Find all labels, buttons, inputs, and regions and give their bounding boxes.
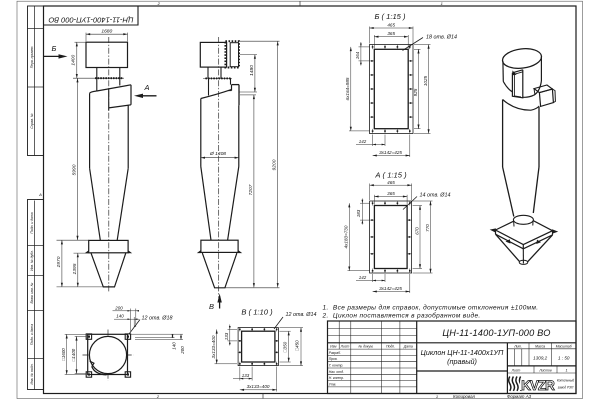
svg-text:1680: 1680: [101, 28, 112, 34]
svg-text:ЦН-11-1400-1УП-000 ВО: ЦН-11-1400-1УП-000 ВО: [48, 16, 133, 25]
svg-text:Лист: Лист: [511, 368, 521, 372]
svg-text:3х133=400: 3х133=400: [211, 335, 216, 358]
svg-text:Копировал: Копировал: [453, 394, 476, 399]
svg-text:Подп. и дата: Подп. и дата: [30, 212, 34, 233]
svg-text:□1600: □1600: [61, 348, 66, 361]
svg-text:142: 142: [359, 275, 367, 280]
svg-text:5990: 5990: [72, 164, 78, 175]
svg-text:Перв. примен.: Перв. примен.: [30, 46, 34, 69]
svg-text:А: А: [143, 83, 149, 92]
svg-text:Подп. и дата: Подп. и дата: [30, 324, 34, 345]
svg-text:140: 140: [172, 342, 177, 350]
svg-text:Лист: Лист: [340, 345, 350, 349]
svg-text:3х133=400: 3х133=400: [247, 384, 270, 389]
svg-text:Справ. №: Справ. №: [30, 113, 34, 129]
svg-text:12 отв. Ø14: 12 отв. Ø14: [286, 312, 317, 318]
svg-text:140: 140: [116, 314, 124, 319]
svg-text:В ( 1:10 ): В ( 1:10 ): [241, 308, 273, 317]
svg-text:1395: 1395: [72, 263, 78, 274]
svg-text:□450: □450: [295, 340, 300, 351]
svg-text:770: 770: [425, 224, 430, 232]
svg-text:Подп.: Подп.: [386, 345, 395, 349]
svg-text:Лит.: Лит.: [513, 344, 522, 348]
svg-text:365: 365: [387, 31, 395, 36]
svg-text:1309,2: 1309,2: [533, 356, 547, 361]
svg-text:925: 925: [413, 88, 418, 96]
svg-text:А ( 1:15 ): А ( 1:15 ): [374, 171, 407, 180]
svg-text:ЦН-11-1400-1УП-000 ВО: ЦН-11-1400-1УП-000 ВО: [442, 328, 550, 338]
svg-text:Листов: Листов: [538, 368, 552, 372]
svg-text:1: 1: [441, 1, 443, 6]
svg-text:1 : 50: 1 : 50: [558, 356, 570, 361]
svg-text:Н. контр.: Н. контр.: [329, 376, 344, 380]
svg-text:6х164=985: 6х164=985: [345, 77, 350, 100]
svg-text:200: 200: [114, 305, 123, 310]
svg-text:670: 670: [414, 227, 419, 235]
svg-text:14 отв. Ø14: 14 отв. Ø14: [420, 193, 451, 199]
svg-text:2. Циклон поставляется в разо: 2. Циклон поставляется в разобранном вид…: [322, 311, 481, 319]
svg-text:Инв. № дубл.: Инв. № дубл.: [30, 250, 34, 271]
svg-text:183: 183: [356, 209, 361, 217]
svg-text:9200: 9200: [272, 159, 278, 170]
svg-text:Масса: Масса: [535, 344, 545, 348]
svg-text:133: 133: [242, 373, 250, 378]
svg-text:133: 133: [224, 332, 229, 340]
svg-text:164: 164: [355, 51, 360, 59]
svg-text:1970: 1970: [56, 256, 62, 267]
svg-text:А: А: [38, 192, 42, 197]
svg-text:□350: □350: [282, 341, 287, 352]
svg-text:Масштаб: Масштаб: [556, 344, 572, 348]
svg-text:Разраб.: Разраб.: [329, 351, 341, 355]
svg-text:Котельный: Котельный: [557, 379, 575, 383]
svg-text:№ докум.: № докум.: [359, 345, 374, 349]
svg-text:1. Все размеры для справок, д: 1. Все размеры для справок, допустимые о…: [323, 303, 539, 311]
svg-text:(правый): (правый): [447, 357, 477, 366]
svg-text:Б: Б: [52, 44, 57, 53]
svg-text:Нач. отд.: Нач. отд.: [329, 370, 344, 374]
svg-text:1400: 1400: [71, 54, 77, 65]
svg-text:4х183=730: 4х183=730: [344, 225, 349, 248]
svg-text:Дата: Дата: [403, 345, 413, 349]
svg-text:465: 465: [387, 180, 395, 185]
svg-text:1: 1: [436, 394, 438, 399]
svg-text:18 отв. Ø14: 18 отв. Ø14: [426, 35, 457, 41]
svg-text:завод РЗП: завод РЗП: [557, 386, 574, 390]
svg-text:1: 1: [565, 368, 567, 372]
svg-text:365: 365: [387, 191, 395, 196]
svg-text:Формат А3: Формат А3: [507, 394, 532, 399]
svg-text:Б ( 1:15 ): Б ( 1:15 ): [374, 12, 406, 21]
svg-text:7207: 7207: [248, 184, 254, 195]
svg-text:Пров.: Пров.: [329, 357, 338, 361]
svg-text:12 отв. Ø18: 12 отв. Ø18: [142, 316, 173, 322]
svg-text:Инв. № подл.: Инв. № подл.: [30, 363, 34, 384]
svg-text:Т. контр.: Т. контр.: [329, 364, 344, 368]
svg-text:Взам. инв. №: Взам. инв. №: [30, 282, 34, 303]
svg-text:1480: 1480: [249, 65, 255, 76]
svg-text:3х142=425: 3х142=425: [379, 150, 402, 155]
svg-text:465: 465: [387, 23, 395, 28]
svg-text:1025: 1025: [423, 75, 428, 86]
svg-text:В: В: [209, 302, 214, 311]
svg-text:3х142=425: 3х142=425: [379, 286, 402, 291]
svg-text:200: 200: [180, 346, 185, 355]
svg-text:Ø 1408: Ø 1408: [209, 151, 226, 157]
svg-text:Изм: Изм: [330, 345, 337, 349]
svg-text:KVZR: KVZR: [521, 378, 555, 393]
svg-text:□1400: □1400: [71, 348, 76, 361]
svg-text:142: 142: [359, 139, 367, 144]
svg-text:Циклон ЦН-11-1400х1УП: Циклон ЦН-11-1400х1УП: [421, 348, 504, 357]
svg-text:Утв.: Утв.: [329, 382, 337, 386]
